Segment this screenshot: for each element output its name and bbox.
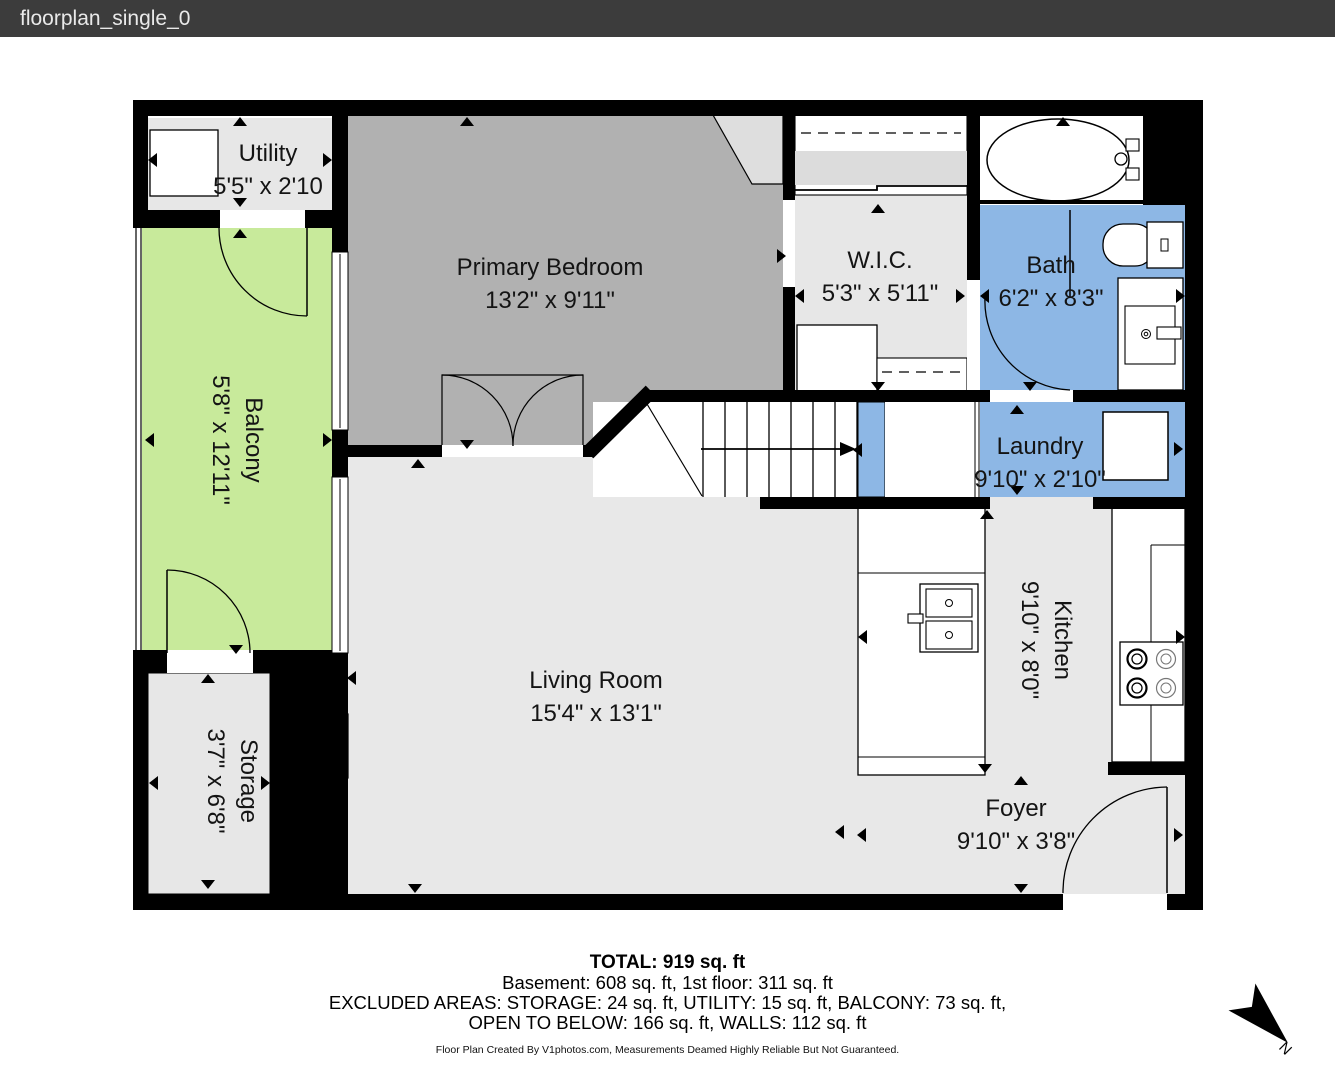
wall-left-top <box>133 100 148 228</box>
kitchen-counter-icon <box>1112 508 1185 762</box>
stove-icon <box>1120 642 1183 705</box>
floorplan-viewer: floorplan_single_0 <box>0 0 1335 1080</box>
room-name: Laundry <box>974 430 1106 463</box>
stair-strip <box>858 402 885 497</box>
washer-icon <box>1103 412 1168 480</box>
wall-mass-storage-right <box>270 650 348 895</box>
wall-laundry-bottom <box>1093 497 1188 509</box>
room-dims: 3'7" x 6'8" <box>199 729 232 834</box>
room-name: Foyer <box>957 792 1075 825</box>
wall-left-bottom <box>133 650 148 910</box>
water-heater-icon <box>150 130 218 196</box>
wall-kitchen-bottom <box>1108 762 1188 775</box>
primary-bedroom-label: Primary Bedroom 13'2" x 9'11" <box>457 251 644 317</box>
summary-excluded-2: OPEN TO BELOW: 166 sq. ft, WALLS: 112 sq… <box>0 1013 1335 1033</box>
opening-storage-balcony <box>167 650 253 673</box>
living-room-label: Living Room 15'4" x 13'1" <box>529 664 662 730</box>
landing-floor <box>885 402 980 497</box>
summary-total: TOTAL: 919 sq. ft <box>0 952 1335 973</box>
vanity-sink-icon <box>1118 278 1183 390</box>
wall-tub-line <box>980 200 1143 204</box>
opening-bedroom-living <box>442 445 583 457</box>
opening-bath-hall <box>990 390 1073 402</box>
area-summary: TOTAL: 919 sq. ft Basement: 608 sq. ft, … <box>0 952 1335 1056</box>
room-dims: 9'10" x 8'0" <box>1013 581 1046 699</box>
room-dims: 6'2" x 8'3" <box>999 282 1104 315</box>
bath-label: Bath 6'2" x 8'3" <box>999 249 1104 315</box>
summary-excluded: EXCLUDED AREAS: STORAGE: 24 sq. ft, UTIL… <box>0 993 1335 1013</box>
room-name: Bath <box>999 249 1104 282</box>
room-dims: 9'10" x 2'10" <box>974 463 1106 496</box>
summary-credit: Floor Plan Created By V1photos.com, Meas… <box>0 1044 1335 1056</box>
room-name: Utility <box>213 137 323 170</box>
wall-bottom <box>133 894 1203 910</box>
kitchen-label: Kitchen 9'10" x 8'0" <box>1013 581 1079 699</box>
wall-top <box>133 100 1203 116</box>
laundry-label: Laundry 9'10" x 2'10" <box>974 430 1106 496</box>
opening-wic-bath <box>967 280 980 390</box>
room-dims: 5'3" x 5'11" <box>822 277 939 310</box>
summary-floors: Basement: 608 sq. ft, 1st floor: 311 sq.… <box>0 973 1335 993</box>
wall-mass-top-right <box>1143 100 1203 205</box>
opening-entry <box>1063 894 1167 910</box>
wall-bedroom-bottom-right <box>645 390 795 402</box>
wic-label: W.I.C. 5'3" x 5'11" <box>822 244 939 310</box>
room-dims: 5'5" x 2'10 <box>213 170 323 203</box>
room-dims: 13'2" x 9'11" <box>457 284 644 317</box>
room-dims: 15'4" x 13'1" <box>529 697 662 730</box>
room-dims: 9'10" x 3'8" <box>957 825 1075 858</box>
storage-label: Storage 3'7" x 6'8" <box>199 729 265 834</box>
utility-label: Utility 5'5" x 2'10 <box>213 137 323 203</box>
kitchen-island-icon <box>858 508 985 775</box>
room-name: Storage <box>232 729 265 834</box>
room-name: Primary Bedroom <box>457 251 644 284</box>
foyer-label: Foyer 9'10" x 3'8" <box>957 792 1075 858</box>
balcony-railing <box>136 228 141 650</box>
room-name: Balcony <box>237 375 270 505</box>
opening-bedroom-wic <box>783 200 795 287</box>
balcony-label: Balcony 5'8" x 12'11" <box>204 375 270 505</box>
room-name: Kitchen <box>1046 581 1079 699</box>
room-name: W.I.C. <box>822 244 939 277</box>
room-name: Living Room <box>529 664 662 697</box>
toilet-icon <box>1103 222 1183 268</box>
opening-utility-balcony <box>220 210 305 228</box>
room-dims: 5'8" x 12'11" <box>204 375 237 505</box>
wall-stairs-bottom <box>760 497 990 509</box>
floorplan-drawing: N <box>0 0 1335 1080</box>
